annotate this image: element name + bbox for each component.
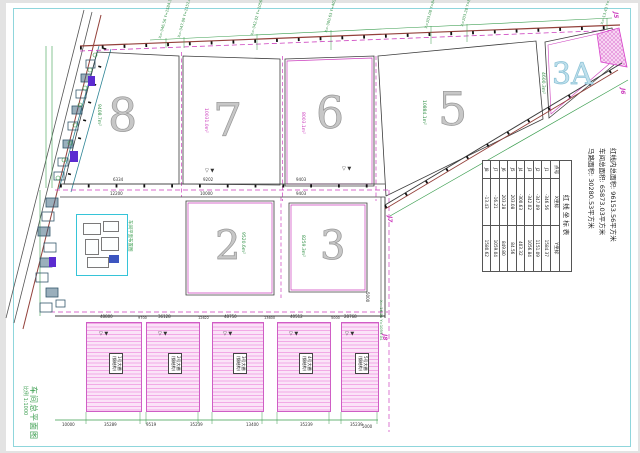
stat-total-area: 红线内总面积: 96153.56平方米 [607,148,618,242]
dim-label: 13400 [246,422,259,427]
coord-cell: -347.09 [534,179,543,225]
plot-area-2: 9520.6m² [240,232,245,254]
coord-cell: -342.02 [525,179,534,225]
dim-label: 5000 [331,316,340,320]
level-mark: ▽ ▼ [289,331,298,337]
coord-header: 点号 [551,161,560,179]
dim-label: 9202 [203,177,213,182]
coord-cell: J7 [491,161,500,179]
stat-workshop-area: 车间总面积: 65873.03平方米 [596,148,607,242]
coord-cell: J8 [483,161,492,179]
coord-cell: -13.43 [483,179,492,225]
coord-cell: 849.80 [500,225,509,271]
plot-number-3: 3 [320,226,345,266]
stat-road-area: 马路面积: 30280.53平方米 [585,148,596,242]
plot-number-7: 7 [213,97,242,143]
coord-cell: 1151.09 [534,225,543,271]
coord-cell: -16.21 [491,179,500,225]
dim-label: 12200 [110,191,123,196]
inset-building [85,239,99,255]
greenhouse-2: ▽ ▼ 2号大棚(钢结构) [146,322,200,412]
greenhouse-4-label: 4号大棚(钢结构) [299,353,313,374]
greenhouse-3: ▽ ▼ 3号大棚(钢结构) [212,322,264,412]
dim-label: 35239 [300,422,313,427]
inset-label: 车间平面布置图 [127,220,133,252]
dim-label: 5000 [362,424,372,429]
inset-building [101,237,119,251]
coord-cell: 203.28 [500,179,509,225]
dim-label: 35239 [350,422,363,427]
dim-label: 10000 [200,191,213,196]
greenhouse-1: ▽ ▼ 1号大棚(钢结构) [86,322,142,412]
coordinate-table: 红线坐标表 点号 X坐标 Y坐标 J1-346.561584.37 J2-347… [482,160,572,272]
dim-label: 9403 [296,177,306,182]
level-mark: ▽ ▼ [345,331,354,337]
dim-label: 5000 [365,292,370,302]
level-mark: ▽ ▼ [158,331,167,337]
greenhouse-3-label: 3号大棚(钢结构) [233,353,247,374]
coord-header: Y坐标 [551,225,560,271]
inset-building [103,221,119,232]
plot-area-3: 8259.3m² [300,235,305,257]
coord-header: X坐标 [551,179,560,225]
greenhouse-2-label: 2号大棚(钢结构) [168,353,182,374]
drawing-scale: 比例 1:1000 [21,386,28,440]
coord-cell: 1580.62 [483,225,492,271]
dim-label: 9700 [138,316,147,320]
inset-building [83,223,101,235]
dim-label: 28768 [344,314,357,319]
dim-label: 13600 [264,316,275,320]
dim-label: 9403 [296,191,306,196]
plot-number-6: 6 [316,92,344,136]
coord-cell: J2 [534,161,543,179]
coord-cell: J1 [542,161,551,179]
j-point-label-j7: J7 [386,216,393,222]
coord-cell: -346.56 [542,179,551,225]
dim-label: 10000 [62,422,75,427]
dim-label: 35239 [190,422,203,427]
level-mark: ▽ ▼ [342,166,351,172]
dim-label: 48800 [100,314,113,319]
inset-building [87,257,109,268]
dim-label: 6334 [113,177,123,182]
dim-label: 9519 [146,422,156,427]
coord-cell: J5 [508,161,517,179]
coord-cell: J6 [500,161,509,179]
drawing-title-block: 车间总平面图 比例 1:1000 [21,386,38,440]
plot-number-8: 8 [108,92,137,138]
coord-cell: 403.32 [517,225,526,271]
dim-label: 12622 [198,316,209,320]
dim-label: 40512 [290,314,303,319]
plot-number-2: 2 [215,226,240,266]
plot-area-6: 8003.1m² [300,112,305,134]
greenhouse-1-label: 1号大棚(钢结构) [109,353,123,374]
coord-cell: 84.56 [508,225,517,271]
plot-area-7: 10031.0m² [203,108,208,133]
plot-number-3a: 3A [552,60,593,90]
greenhouse-5: ▽ ▼ 5号大棚(钢结构) [341,322,379,412]
coord-callout: X=-16.21 Y=1059.04 [379,300,384,340]
greenhouse-4: ▽ ▼ 4号大棚(钢结构) [277,322,331,412]
level-mark: ▽ ▼ [99,331,108,337]
coord-cell: 1059.04 [491,225,500,271]
inset-detail-box [76,214,128,276]
level-mark: ▽ ▼ [223,331,232,337]
dim-label: 35289 [104,422,117,427]
coord-cell: 1584.37 [542,225,551,271]
area-statistics: 红线内总面积: 96153.56平方米 车间总面积: 65873.03平方米 马… [585,148,618,242]
plot-area-5: 10884.1m² [421,100,426,125]
coord-cell: 203.08 [508,179,517,225]
dim-label: 36128 [158,314,171,319]
coord-table-title: 红线坐标表 [560,161,572,272]
plot-area-3a: 4600.3m² [540,72,545,94]
coord-cell: J4 [517,161,526,179]
coord-cell: J3 [525,161,534,179]
inset-building-highlight [109,255,119,263]
j-point-label-j5: J5 [612,12,619,18]
plot-area-8: 9408.7m² [96,104,101,126]
greenhouse-5-label: 5号大棚(钢结构) [355,353,369,374]
coord-cell: -300.63 [517,179,526,225]
plot-number-5: 5 [438,86,467,132]
coord-cell: 1056.84 [525,225,534,271]
dim-label: 48750 [224,314,237,319]
drawing-title: 车间总平面图 [28,386,38,440]
j-point-label-j6: J6 [619,88,626,94]
level-mark: ▽ ▼ [205,168,214,174]
